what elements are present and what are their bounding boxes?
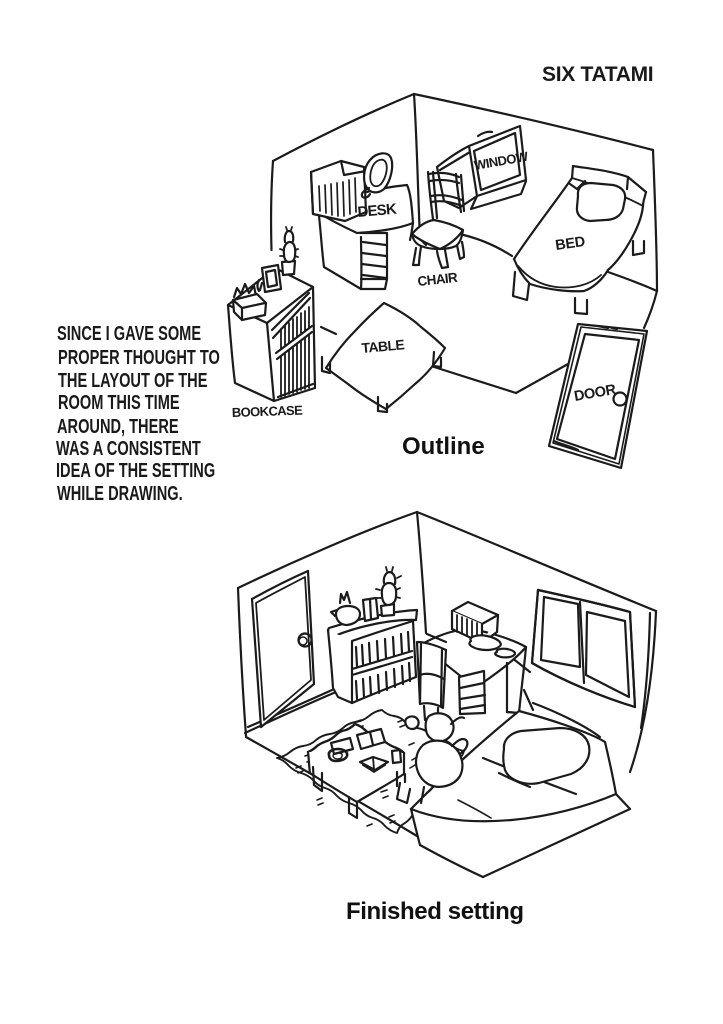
svg-text:AROUND, THERE: AROUND, THERE bbox=[57, 415, 179, 438]
svg-text:DESK: DESK bbox=[357, 201, 398, 221]
svg-text:BOOKCASE: BOOKCASE bbox=[232, 403, 304, 420]
svg-text:SINCE I GAVE SOME: SINCE I GAVE SOME bbox=[57, 322, 201, 345]
svg-text:THE LAYOUT OF THE: THE LAYOUT OF THE bbox=[58, 369, 207, 392]
svg-text:PROPER THOUGHT TO: PROPER THOUGHT TO bbox=[58, 346, 220, 369]
svg-text:IDEA OF THE SETTING: IDEA OF THE SETTING bbox=[56, 459, 215, 482]
svg-text:Finished setting: Finished setting bbox=[346, 898, 524, 925]
svg-text:WAS A CONSISTENT: WAS A CONSISTENT bbox=[56, 437, 201, 460]
svg-text:SIX TATAMI: SIX TATAMI bbox=[542, 63, 653, 86]
svg-text:WHILE DRAWING.: WHILE DRAWING. bbox=[57, 482, 183, 505]
svg-text:Outline: Outline bbox=[402, 433, 485, 460]
svg-text:ROOM THIS TIME: ROOM THIS TIME bbox=[58, 391, 180, 414]
